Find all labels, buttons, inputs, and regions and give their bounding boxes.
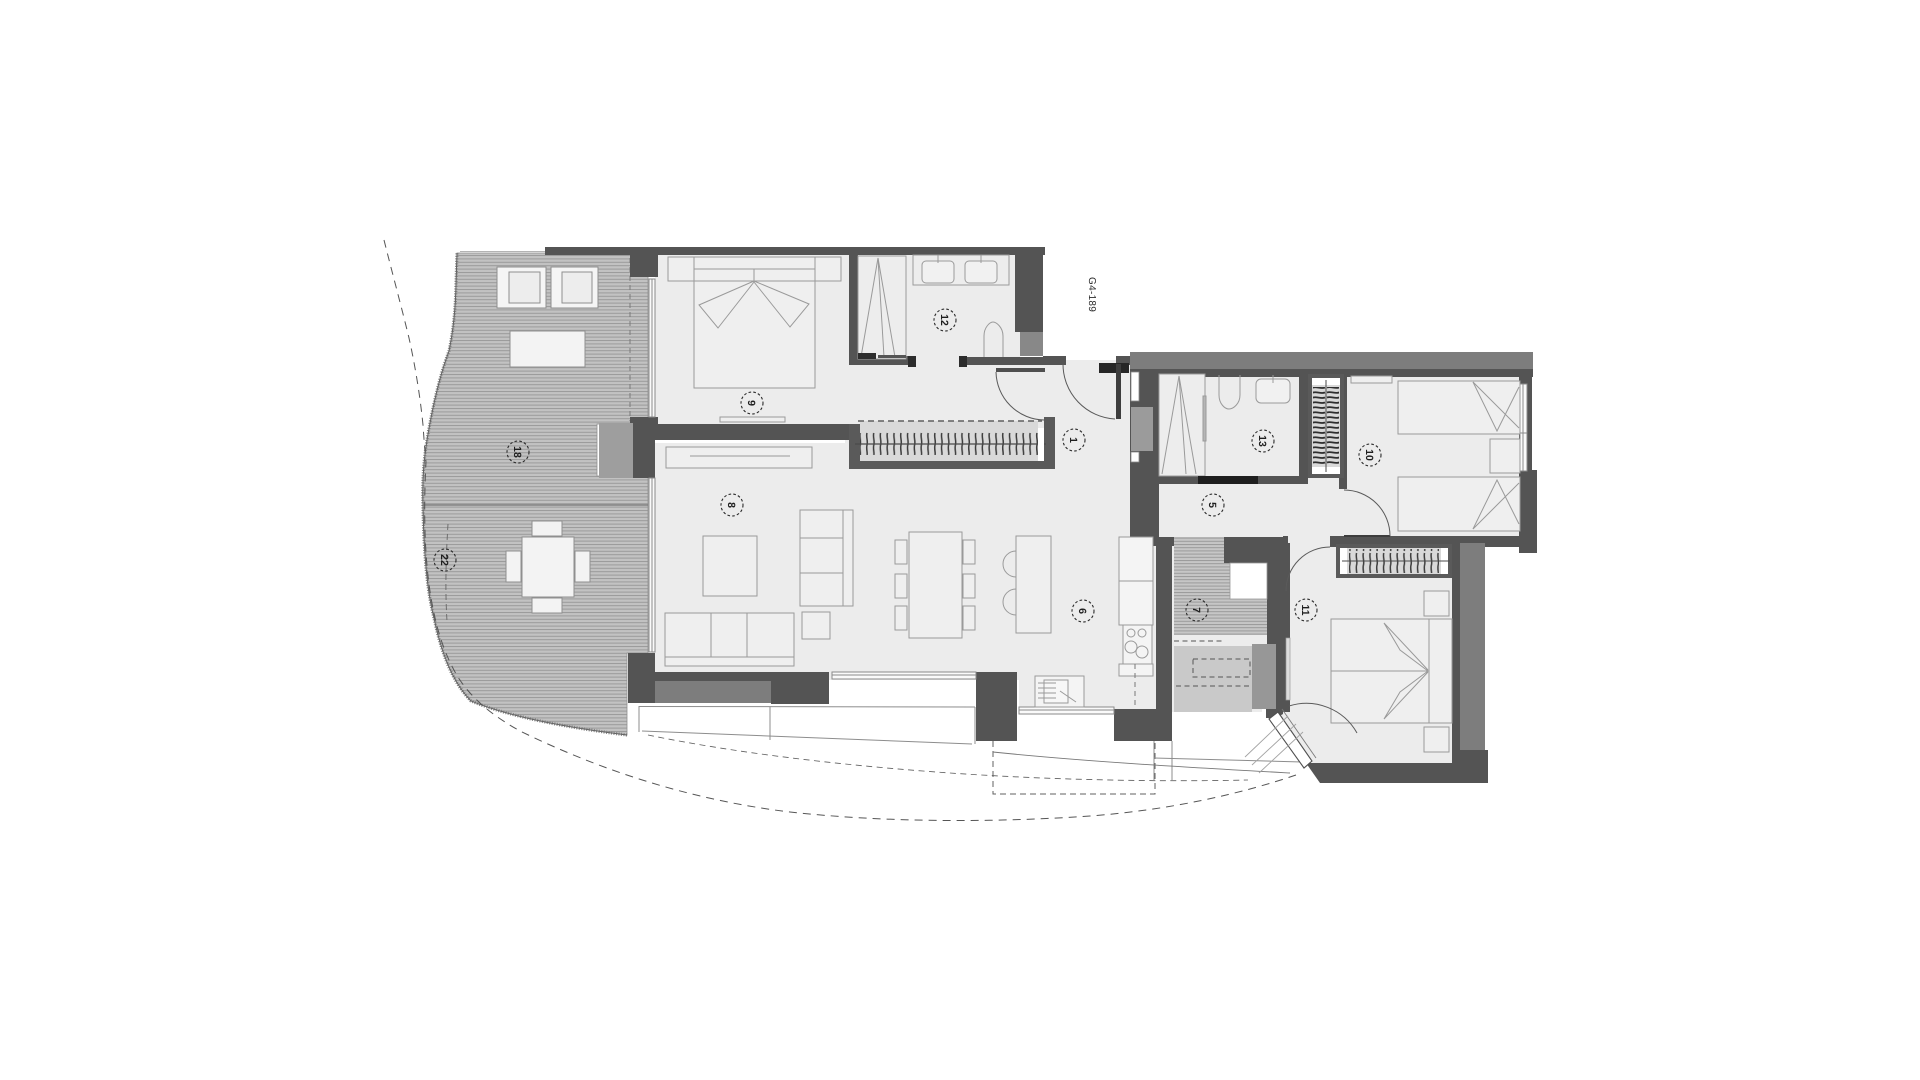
svg-text:18: 18 [511,446,523,458]
svg-text:22: 22 [438,554,450,566]
svg-text:7: 7 [1190,607,1202,613]
svg-text:9: 9 [745,400,757,406]
svg-text:G4-189: G4-189 [1086,277,1097,312]
svg-text:12: 12 [938,314,950,326]
svg-text:5: 5 [1206,502,1218,508]
svg-text:6: 6 [1076,608,1088,614]
svg-text:11: 11 [1299,604,1311,615]
svg-text:13: 13 [1256,435,1268,447]
svg-text:10: 10 [1363,449,1375,461]
svg-text:1: 1 [1067,437,1079,443]
svg-text:8: 8 [725,502,737,508]
